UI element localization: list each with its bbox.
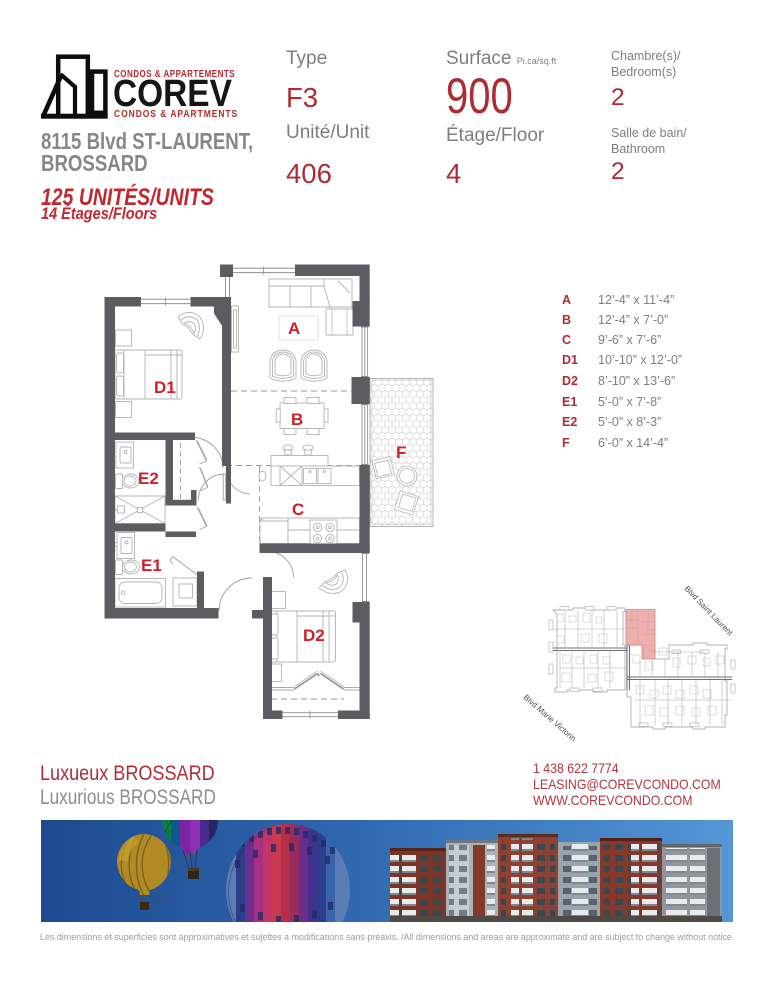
svg-text:E2: E2: [138, 469, 159, 488]
svg-text:A: A: [288, 319, 300, 338]
svg-text:Blvd Saint Laurent: Blvd Saint Laurent: [683, 584, 735, 638]
svg-text:D2: D2: [303, 626, 325, 645]
svg-text:F: F: [396, 443, 406, 462]
svg-text:C: C: [292, 500, 304, 519]
svg-text:E1: E1: [141, 556, 162, 575]
svg-text:Blvd Marie Victorin: Blvd Marie Victorin: [522, 693, 578, 743]
svg-text:D1: D1: [154, 378, 176, 397]
svg-text:B: B: [291, 410, 303, 429]
